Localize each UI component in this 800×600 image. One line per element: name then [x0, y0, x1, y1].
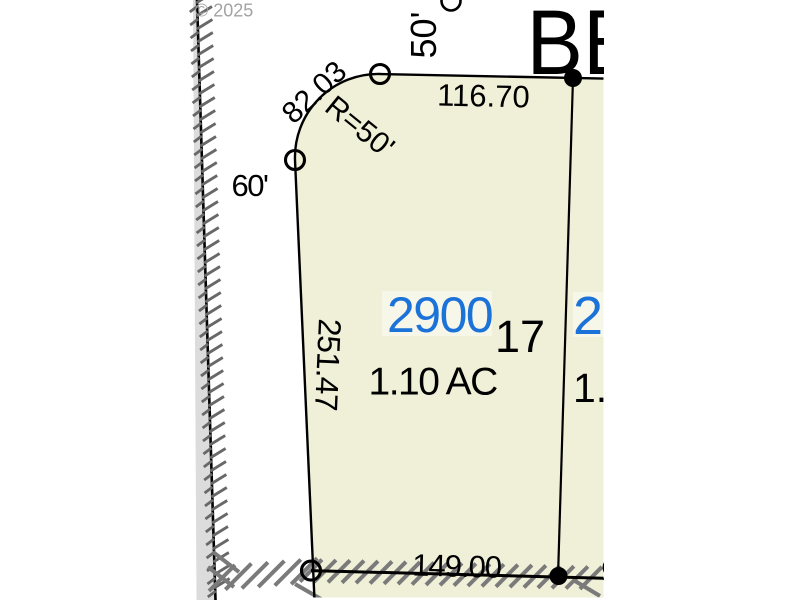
svg-text:149.00: 149.00 [412, 548, 502, 585]
svg-text:60': 60' [232, 168, 268, 203]
svg-text:116.70: 116.70 [437, 78, 530, 115]
svg-text:2: 2 [573, 286, 603, 346]
svg-text:17: 17 [495, 311, 545, 362]
svg-text:2900: 2900 [387, 287, 492, 343]
svg-text:50': 50' [403, 12, 444, 59]
svg-text:1.10 AC: 1.10 AC [369, 361, 498, 404]
svg-text:1.: 1. [573, 365, 607, 411]
svg-text:251.47: 251.47 [308, 318, 348, 412]
svg-text:© 2025: © 2025 [195, 1, 253, 21]
